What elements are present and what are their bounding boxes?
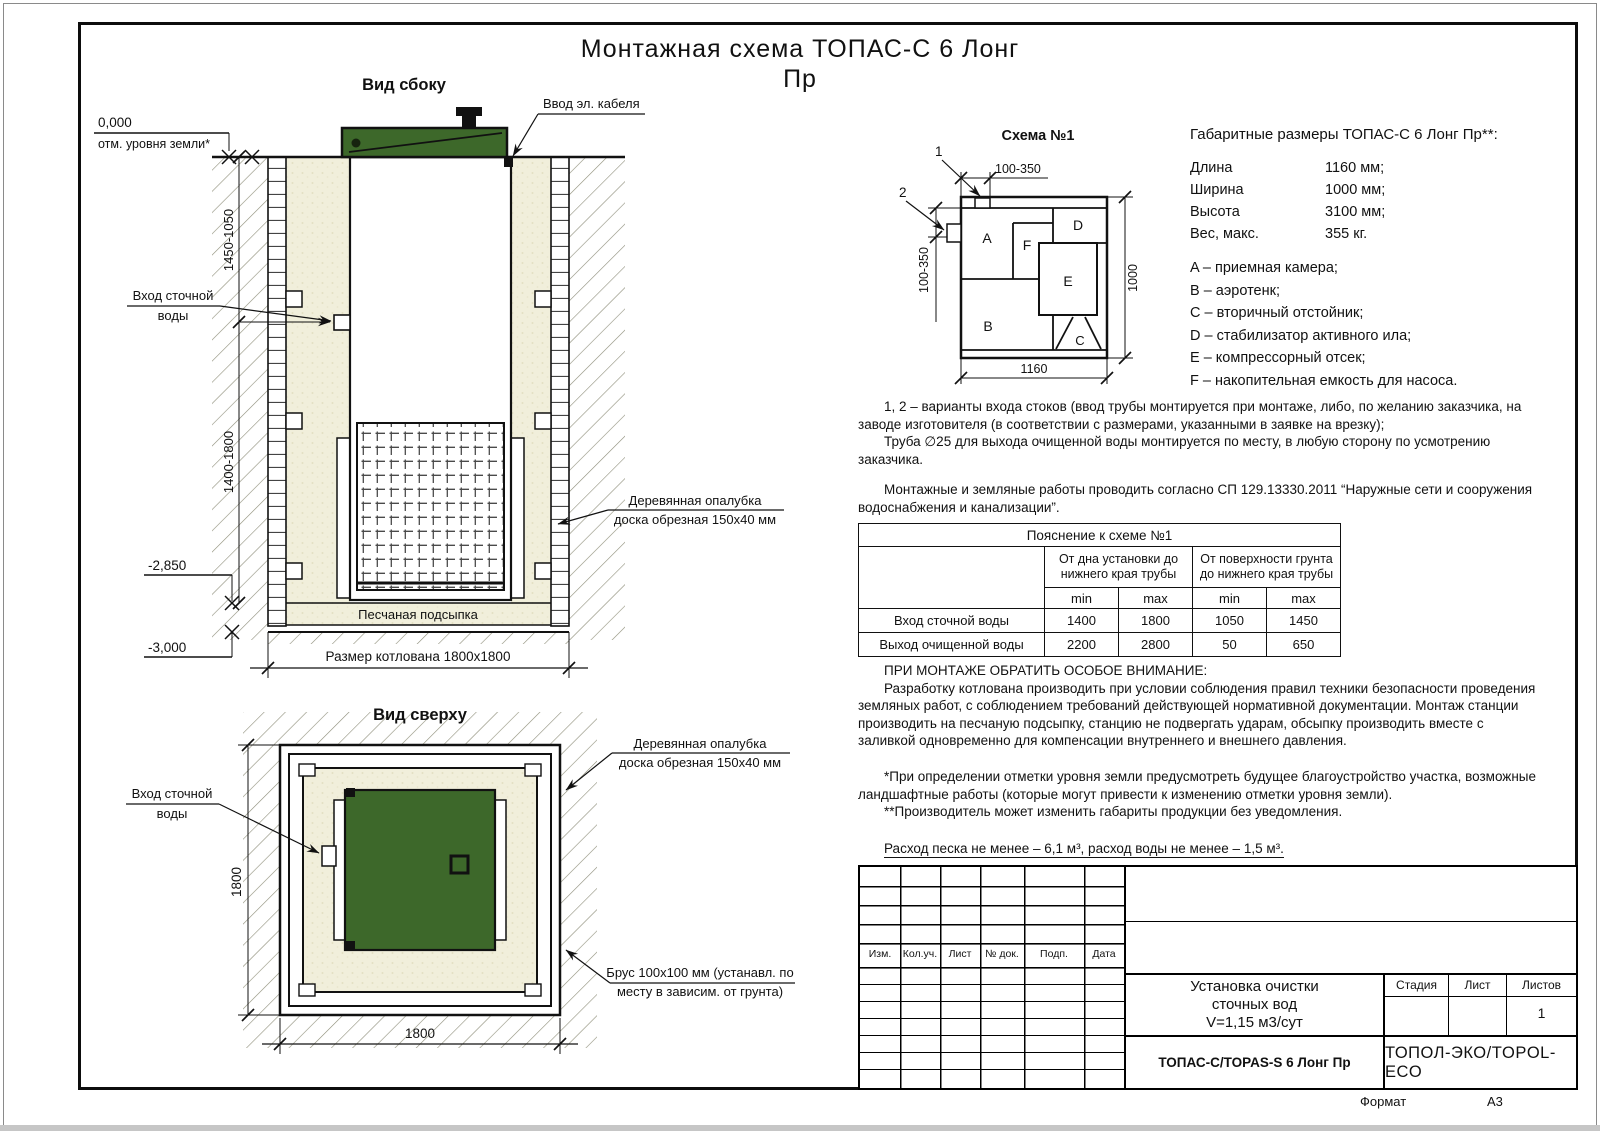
footnotes-block: *При определении отметки уровня земли пр… [858, 768, 1538, 821]
min-header: min [1045, 588, 1119, 609]
min-header: min [1193, 588, 1267, 609]
table-group2-header: От поверхности грунта до нижнего края тр… [1193, 547, 1341, 588]
schema1-caption: Схема №1 [1002, 128, 1075, 144]
compartment-f: F [1023, 237, 1032, 253]
soil-hatch-right [569, 157, 625, 640]
format-label: Формат [1360, 1094, 1406, 1109]
compartment-legend: A – приемная камера; B – аэротенк; C – в… [1190, 257, 1540, 392]
sand-bedding-label: Песчаная подсыпка [358, 607, 478, 622]
pit-size-label: Размер котлована 1800х1800 [326, 649, 511, 664]
stamp-empty-row2 [1126, 922, 1576, 975]
compartment-d: D [1073, 217, 1083, 233]
svg-text:месту в зависим. от грунта): месту в зависим. от грунта) [617, 984, 783, 999]
svg-text:Вход сточной: Вход сточной [132, 786, 213, 801]
table-row-inlet: Вход сточной воды 1400 1800 1050 1450 [859, 609, 1341, 633]
attention-heading: ПРИ МОНТАЖЕ ОБРАТИТЬ ОСОБОЕ ВНИМАНИЕ: [858, 662, 1538, 680]
inlet-pipe-top [322, 846, 336, 866]
table-row-outlet: Выход очищенной воды 2200 2800 50 650 [859, 633, 1341, 657]
svg-text:Деревянная опалубка: Деревянная опалубка [634, 736, 768, 751]
tank-lid-top [345, 790, 495, 950]
schema-callout-1: 1 [935, 144, 980, 196]
schema-inlet-1 [975, 198, 990, 208]
max-header: max [1267, 588, 1341, 609]
side-rail-left [337, 438, 350, 598]
tank-ribbed-base [357, 423, 504, 590]
dim-1800-bottom: 1800 [405, 1026, 435, 1041]
compartment-b: B [983, 318, 992, 334]
stamp-col-data: Дата [1084, 948, 1124, 960]
lid-rail-right [495, 800, 506, 940]
window-bottom-edge [0, 1125, 1600, 1131]
schema1-drawing: Схема №1 A F D E B C [899, 128, 1140, 384]
stamp-sheet-info: Стадия Лист Листов 1 [1385, 975, 1576, 1035]
svg-text:Деревянная опалубка: Деревянная опалубка [629, 493, 763, 508]
format-value: А3 [1487, 1094, 1503, 1109]
title-block-stamp: Изм. Кол.уч. Лист № док. Подп. Дата Уста… [858, 865, 1578, 1090]
stamp-sheet-header: Лист [1449, 975, 1507, 996]
beam-callout-top: Брус 100х100 мм (устанавл. по месту в за… [566, 950, 795, 999]
lid-rail-left [334, 800, 345, 940]
cable-entry-point [504, 158, 513, 167]
svg-text:Ввод эл. кабеля: Ввод эл. кабеля [543, 96, 640, 111]
stamp-sheets-value: 1 [1507, 997, 1576, 1035]
explanation-table: Пояснение к схеме №1 От дна установки до… [858, 523, 1341, 657]
stamp-right-section: Установка очистки сточных вод V=1,15 м3/… [1126, 867, 1576, 1088]
legend-item-d: D – стабилизатор активного ила; [1190, 325, 1540, 348]
footnote-ground-level: *При определении отметки уровня земли пр… [858, 768, 1538, 803]
svg-text:воды: воды [158, 308, 189, 323]
formwork-left [268, 157, 286, 626]
spec-row-width: Ширина 1000 мм; [1190, 179, 1540, 201]
ground-level-label: отм. уровня земли* [98, 137, 210, 151]
zero-elevation: 0,000 [98, 115, 132, 130]
specs-block: Габаритные размеры ТОПАС-С 6 Лонг Пр**: … [1190, 126, 1540, 392]
stamp-stage-value [1385, 997, 1449, 1035]
stamp-col-podp: Подп. [1024, 948, 1084, 960]
stamp-col-ndok: № док. [980, 948, 1024, 960]
stamp-col-list: Лист [940, 948, 980, 960]
footnote-manufacturer: **Производитель может изменить габариты … [858, 803, 1538, 821]
svg-text:1: 1 [935, 144, 943, 159]
dim-upper: 1450-1050 [221, 209, 236, 271]
stamp-col-izm: Изм. [860, 948, 900, 960]
stamp-revision-grid: Изм. Кол.уч. Лист № док. Подп. Дата [860, 867, 1126, 1088]
elev-3000: -3,000 [148, 640, 186, 655]
formwork-callout-top: Деревянная опалубка доска обрезная 150х4… [566, 736, 790, 790]
schema-dim-bottom: 1160 [1021, 362, 1048, 376]
svg-text:доска обрезная 150х40 мм: доска обрезная 150х40 мм [619, 755, 781, 770]
schema-dim-top: 100-350 [995, 162, 1041, 176]
stamp-sheet-value [1449, 997, 1507, 1035]
note-variants: 1, 2 – варианты входа стоков (ввод трубы… [858, 398, 1536, 433]
elev-2850: -2,850 [148, 558, 186, 573]
stamp-stage-header: Стадия [1385, 975, 1449, 996]
drawing-sheet: Монтажная схема ТОПАС-С 6 Лонг Пр [0, 0, 1600, 1131]
schema-dim-right: 1000 [1126, 264, 1140, 292]
table-group1-header: От дна установки до нижнего края трубы [1045, 547, 1193, 588]
spec-row-weight: Вес, макс. 355 кг. [1190, 223, 1540, 245]
table-title: Пояснение к схеме №1 [859, 524, 1341, 547]
compartment-a: A [982, 230, 992, 246]
spec-row-height: Высота 3100 мм; [1190, 201, 1540, 223]
stamp-col-kol: Кол.уч. [900, 948, 940, 960]
stamp-empty-row1 [1126, 867, 1576, 922]
svg-text:доска обрезная 150х40 мм: доска обрезная 150х40 мм [614, 512, 776, 527]
side-view-drawing: Вид сбоку 0,000 отм. уровня земли* 1450-… [94, 76, 784, 678]
legend-item-c: C – вторичный отстойник; [1190, 302, 1540, 325]
svg-text:2: 2 [899, 185, 907, 200]
side-view-caption: Вид сбоку [362, 76, 447, 94]
legend-item-a: A – приемная камера; [1190, 257, 1540, 280]
compartment-e: E [1063, 273, 1072, 289]
svg-text:Вход сточной: Вход сточной [133, 288, 214, 303]
attention-body: Разработку котлована производить при усл… [858, 680, 1538, 750]
legend-item-f: F – накопительная емкость для насоса. [1190, 370, 1540, 393]
top-view-caption: Вид сверху [373, 706, 468, 724]
stamp-project-name: Установка очистки сточных вод V=1,15 м3/… [1126, 975, 1385, 1035]
table-corner-cell [859, 547, 1045, 609]
formwork-right [551, 157, 569, 626]
stamp-sheets-header: Листов [1507, 975, 1576, 996]
dim-1800-left: 1800 [229, 867, 244, 897]
notes-block: 1, 2 – варианты входа стоков (ввод трубы… [858, 398, 1536, 517]
attention-block: ПРИ МОНТАЖЕ ОБРАТИТЬ ОСОБОЕ ВНИМАНИЕ: Ра… [858, 662, 1538, 750]
top-view-drawing: Вид сверху 1800 1800 Вход сточной воды Д… [126, 706, 795, 1054]
vent-cap [456, 107, 482, 116]
cable-entry-callout: Ввод эл. кабеля [513, 96, 645, 156]
max-header: max [1119, 588, 1193, 609]
soil-hatch-bottom [268, 632, 569, 644]
tank-lid [342, 107, 507, 157]
compartment-c: C [1075, 333, 1084, 348]
stamp-organization: ТОПОЛ-ЭКО/TOPOL-ECO [1385, 1037, 1576, 1088]
side-rail-right [511, 438, 524, 598]
spec-row-length: Длина 1160 мм; [1190, 157, 1540, 179]
stamp-doc-designation: ТОПАС-С/TOPAS-S 6 Лонг Пр [1126, 1037, 1385, 1088]
svg-text:Брус 100х100 мм (устанавл. по: Брус 100х100 мм (устанавл. по [606, 965, 793, 980]
legend-item-e: E – компрессорный отсек; [1190, 347, 1540, 370]
note-outlet-pipe: Труба ∅25 для выхода очищенной воды монт… [858, 433, 1536, 468]
dim-lower: 1400-1800 [221, 431, 236, 493]
legend-item-b: B – аэротенк; [1190, 280, 1540, 303]
svg-text:воды: воды [157, 806, 188, 821]
specs-heading: Габаритные размеры ТОПАС-С 6 Лонг Пр**: [1190, 126, 1540, 143]
service-hatch [451, 856, 468, 873]
schema-dim-left: 100-350 [917, 247, 931, 293]
schema-inlet-2 [947, 224, 961, 242]
inlet-pipe [334, 315, 350, 330]
note-sp-standard: Монтажные и земляные работы проводить со… [858, 481, 1536, 516]
consumption-note: Расход песка не менее – 6,1 м³, расход в… [858, 841, 1458, 856]
